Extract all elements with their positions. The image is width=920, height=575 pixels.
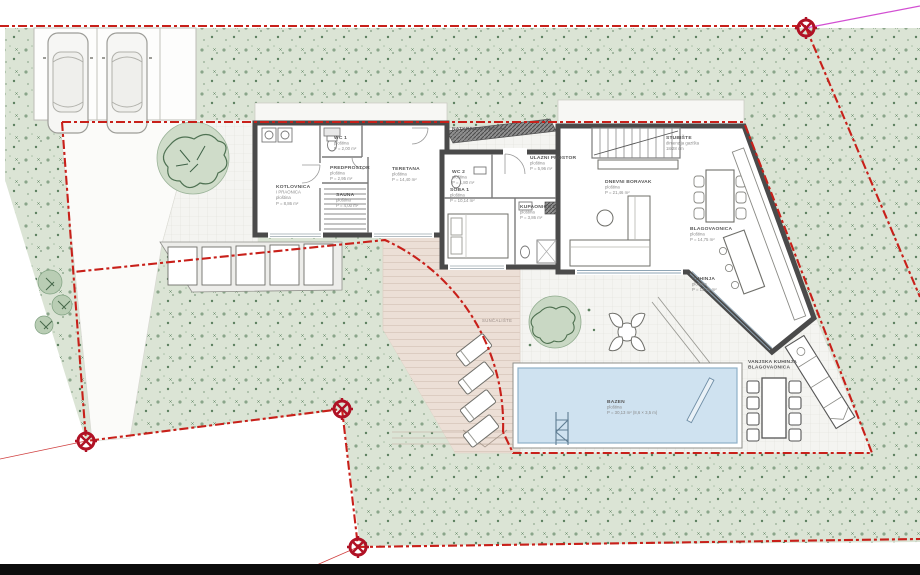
tv-bench <box>598 160 678 169</box>
pool <box>513 363 742 448</box>
bottom-bar <box>0 564 920 575</box>
bed <box>448 214 508 258</box>
vanjska-kuhinja-label: VANJSKA KUHINJABLAGOVAONICA <box>748 359 797 371</box>
pool-water <box>518 368 737 443</box>
outdoor-dining <box>747 378 801 441</box>
eaves-west-wing <box>255 103 447 123</box>
car-2 <box>102 33 152 133</box>
dining-table-indoor <box>694 170 746 222</box>
front-tree <box>157 122 229 194</box>
car-1 <box>43 33 93 133</box>
sun-ali-te-label: SUNČALIŠTE <box>482 318 512 323</box>
site-plan: KOTLOVNICAI PRAONICAploštinaP = 8,86 m²W… <box>0 0 920 575</box>
site-plan-svg: KOTLOVNICAI PRAONICAploštinaP = 8,86 m²W… <box>0 0 920 575</box>
planter-pads <box>160 242 342 292</box>
parking-area <box>34 28 196 133</box>
